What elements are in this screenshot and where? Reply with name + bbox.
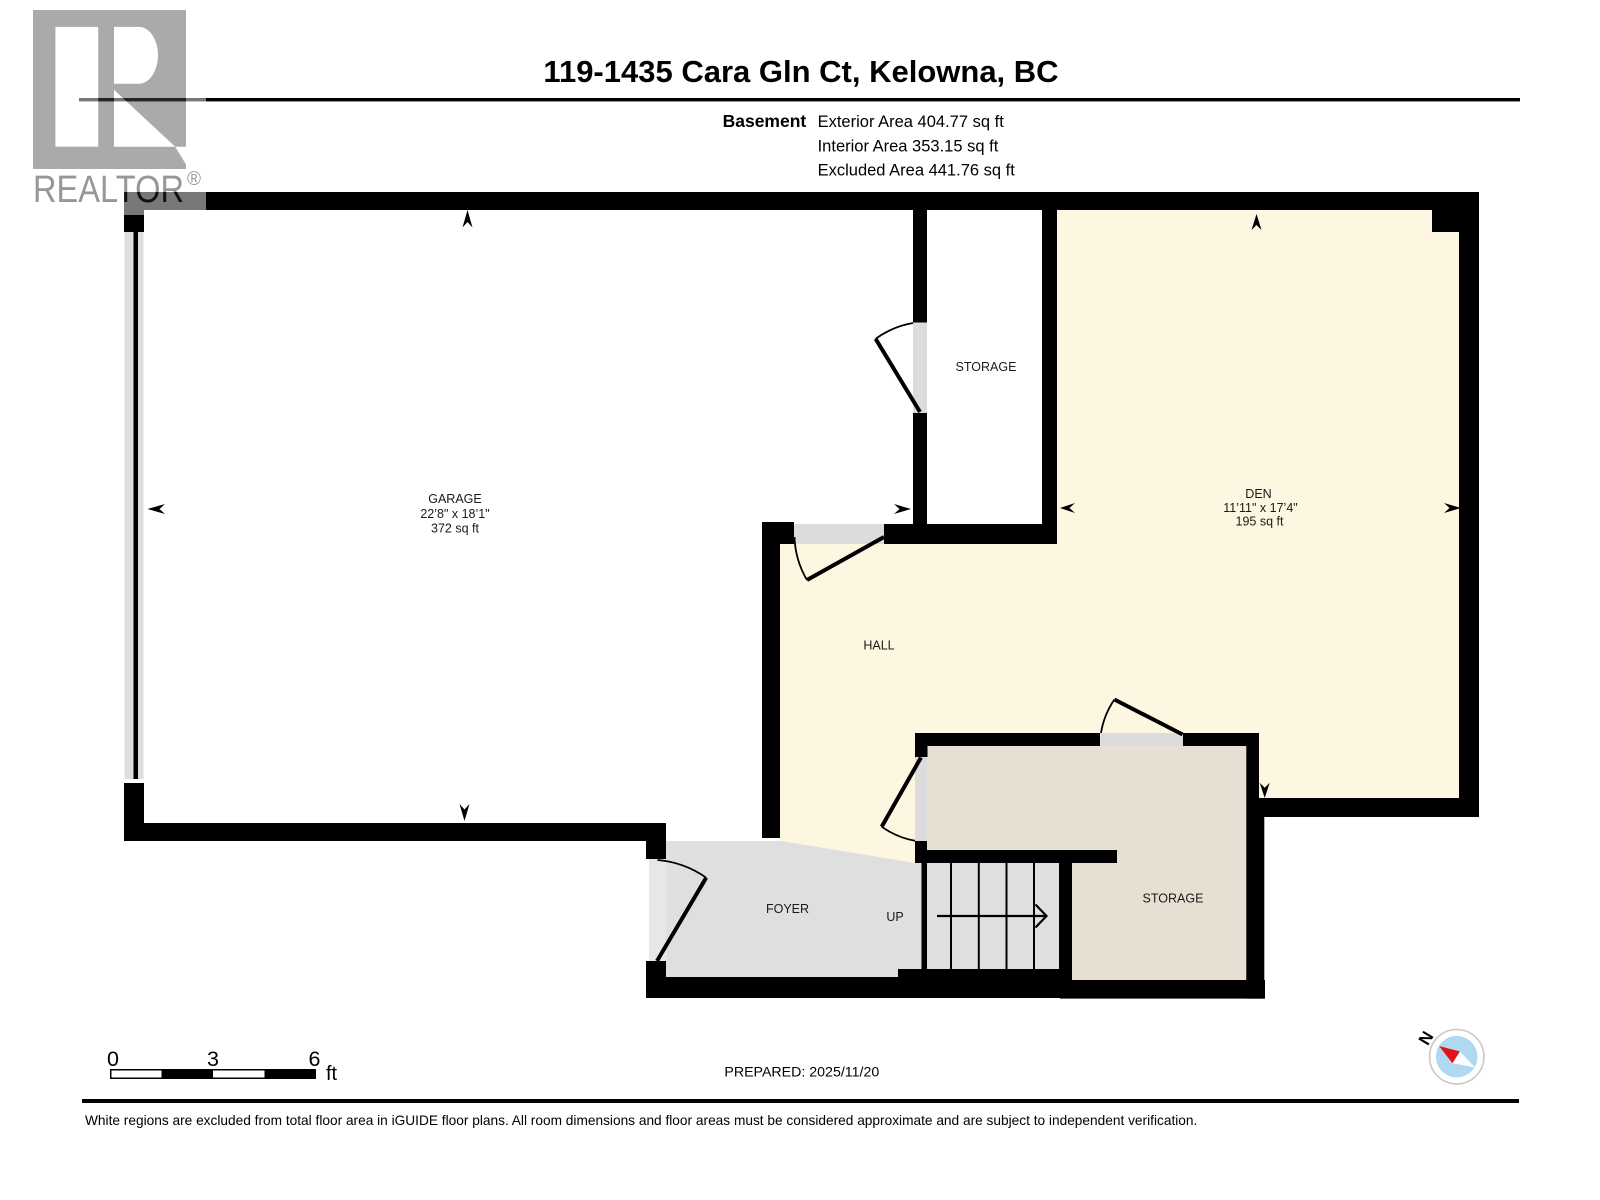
svg-text:UP: UP [886, 910, 903, 924]
svg-text:GARAGE: GARAGE [428, 492, 482, 506]
svg-text:Exterior Area 404.77 sq ft: Exterior Area 404.77 sq ft [818, 113, 1005, 131]
svg-text:ft: ft [326, 1063, 338, 1085]
svg-text:11’11" x 17’4": 11’11" x 17’4" [1223, 501, 1297, 515]
svg-text:STORAGE: STORAGE [956, 360, 1017, 374]
svg-text:PREPARED: 2025/11/20: PREPARED: 2025/11/20 [724, 1065, 879, 1081]
svg-text:3: 3 [207, 1047, 219, 1071]
svg-text:119-1435 Cara Gln Ct, Kelowna,: 119-1435 Cara Gln Ct, Kelowna, BC [543, 54, 1058, 89]
svg-text:STORAGE: STORAGE [1143, 892, 1204, 906]
svg-text:®: ® [187, 169, 201, 190]
svg-text:372 sq ft: 372 sq ft [431, 522, 479, 536]
svg-text:0: 0 [107, 1047, 119, 1071]
svg-text:Excluded Area 441.76 sq ft: Excluded Area 441.76 sq ft [818, 162, 1016, 180]
svg-text:Basement: Basement [723, 111, 807, 131]
svg-text:REALTOR: REALTOR [33, 169, 184, 211]
svg-text:HALL: HALL [863, 639, 894, 653]
svg-text:White regions are excluded fro: White regions are excluded from total fl… [85, 1113, 1197, 1128]
svg-text:6: 6 [309, 1047, 321, 1071]
svg-text:Interior Area 353.15 sq ft: Interior Area 353.15 sq ft [818, 137, 999, 155]
svg-text:FOYER: FOYER [766, 902, 809, 916]
svg-text:195 sq ft: 195 sq ft [1236, 515, 1284, 529]
svg-text:22’8" x 18’1": 22’8" x 18’1" [420, 507, 489, 521]
svg-text:DEN: DEN [1245, 487, 1271, 501]
